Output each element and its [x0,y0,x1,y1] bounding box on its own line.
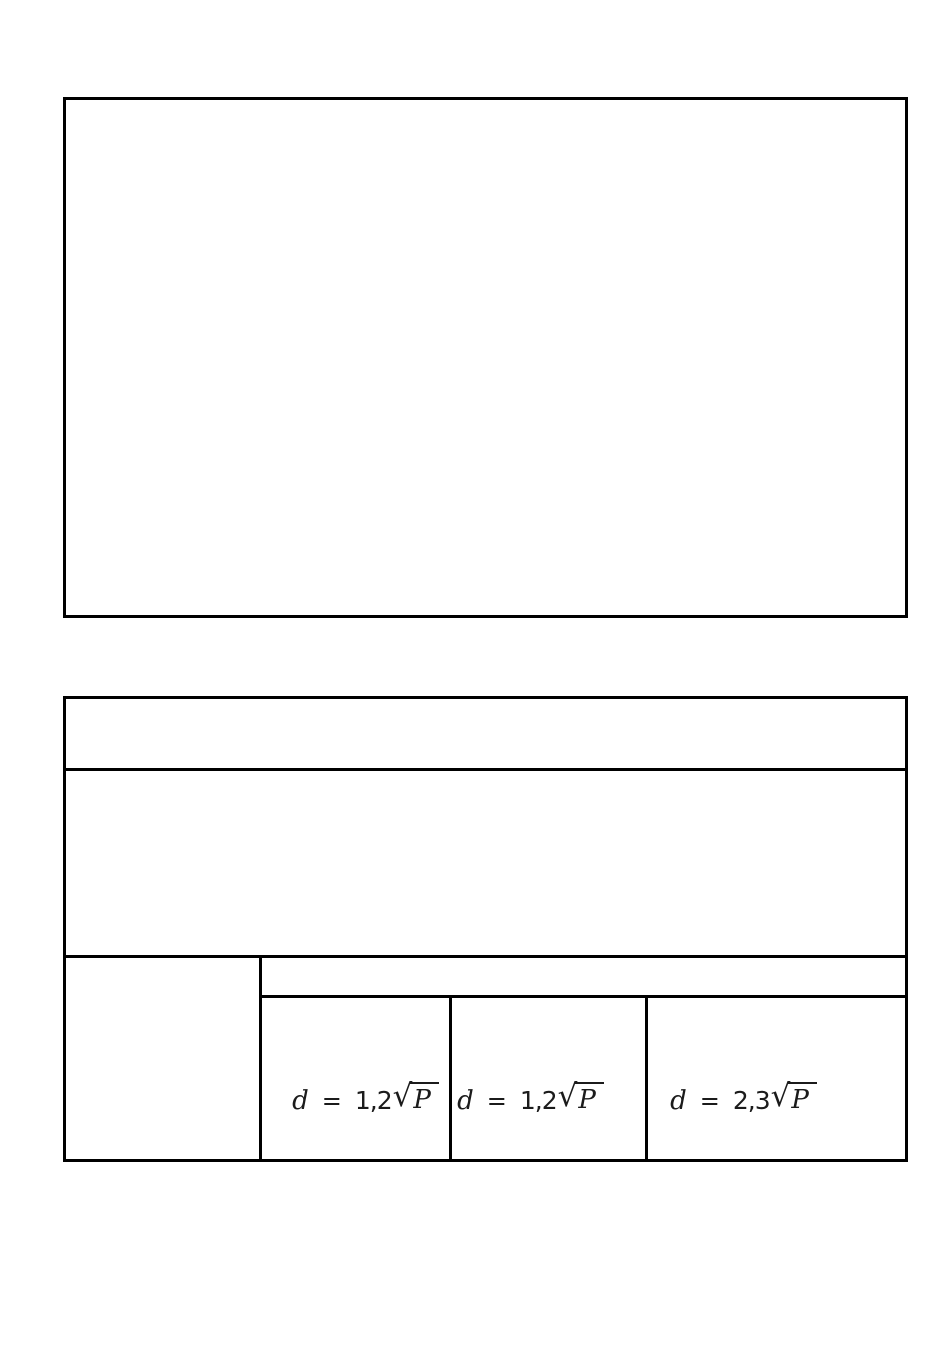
formula-cell-1: d = 1,2 √ P [262,998,452,1159]
formula-1-variable: d [292,1086,309,1116]
document-page: d = 1,2 √ P d = 1,2 [0,0,950,1350]
sqrt-radical-icon: √ P [393,1084,439,1117]
table-body-row [66,771,905,958]
formula-row: d = 1,2 √ P d = 1,2 [262,998,905,1159]
sqrt-radical-icon: √ P [558,1084,604,1117]
title-table: d = 1,2 √ P d = 1,2 [63,696,908,1162]
table-footer-row: d = 1,2 √ P d = 1,2 [66,958,905,1159]
footer-right-header-strip [262,958,905,998]
formula-cell-2: d = 1,2 √ P [452,998,648,1159]
formula-1-coefficient: 1,2 [355,1086,392,1115]
footer-left-cell [66,958,262,1159]
formula-2-coefficient: 1,2 [520,1086,557,1115]
formula-2: d = 1,2 √ P [457,1084,604,1117]
formula-1-equals: = [322,1087,342,1115]
formula-1-radicand: P [410,1082,439,1115]
formula-cell-3: d = 2,3 √ P [648,998,905,1159]
sqrt-radical-icon: √ P [771,1084,817,1117]
table-header-row [66,699,905,771]
formula-3: d = 2,3 √ P [670,1084,817,1117]
formula-3-variable: d [670,1086,687,1116]
formula-3-equals: = [700,1087,720,1115]
formula-2-equals: = [487,1087,507,1115]
formula-2-variable: d [457,1086,474,1116]
formula-1: d = 1,2 √ P [292,1084,439,1117]
formula-3-radicand: P [788,1082,817,1115]
formula-2-radicand: P [575,1082,604,1115]
figure-frame [63,97,908,618]
footer-right-area: d = 1,2 √ P d = 1,2 [262,958,905,1159]
formula-3-coefficient: 2,3 [733,1086,770,1115]
